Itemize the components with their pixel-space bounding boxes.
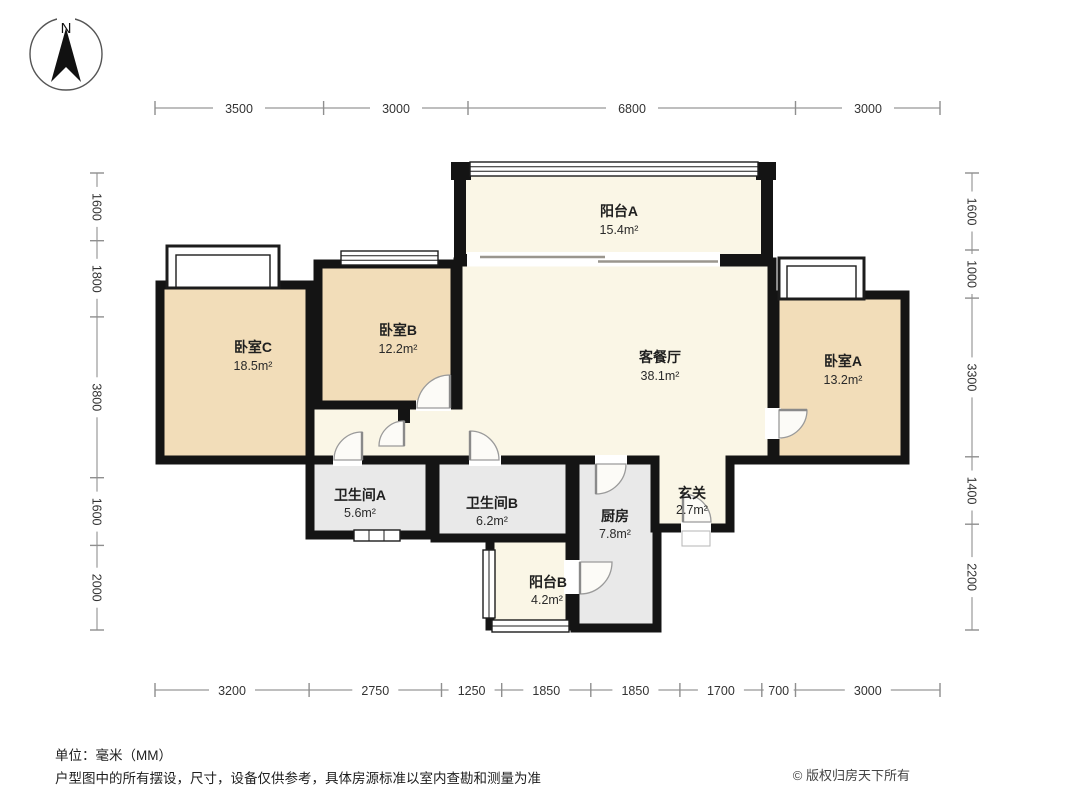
rooms-and-walls <box>160 162 905 628</box>
entry-threshold <box>682 531 710 546</box>
bedroom-a-bay-window <box>779 258 864 299</box>
room-area: 13.2m² <box>824 373 863 387</box>
room-area: 2.7m² <box>676 503 708 517</box>
dim-label: 700 <box>768 684 789 698</box>
dim-label: 1850 <box>532 684 560 698</box>
dim-label: 1700 <box>707 684 735 698</box>
dim-label: 2750 <box>361 684 389 698</box>
compass-north-label: N <box>61 20 72 37</box>
dim-label: 2000 <box>90 574 104 602</box>
room-area: 18.5m² <box>234 359 273 373</box>
room-label: 玄关 <box>678 485 706 501</box>
room-area: 15.4m² <box>600 223 639 237</box>
room-label: 卫生间B <box>466 495 518 511</box>
room-label: 阳台A <box>600 203 638 219</box>
dim-label: 3000 <box>854 684 882 698</box>
room-label: 卧室B <box>379 322 417 338</box>
room-area: 38.1m² <box>641 369 680 383</box>
dim-label: 3000 <box>382 102 410 116</box>
bath-a-window <box>354 530 400 541</box>
room-label: 卧室A <box>824 353 862 369</box>
room-label: 卧室C <box>234 339 272 355</box>
room-label: 卫生间A <box>334 487 386 503</box>
dimension-chain-left: 1600 1800 3800 1600 2000 <box>89 173 105 630</box>
dim-label: 3200 <box>218 684 246 698</box>
room-area: 12.2m² <box>379 342 418 356</box>
dim-label: 3000 <box>854 102 882 116</box>
dim-label: 1600 <box>90 498 104 526</box>
room-label: 阳台B <box>529 574 567 590</box>
dim-label: 1000 <box>965 260 979 288</box>
dim-label: 1400 <box>965 477 979 505</box>
dim-label: 3500 <box>225 102 253 116</box>
copyright-text: © 版权归房天下所有 <box>793 765 910 784</box>
bedroom-c-bay-window <box>167 246 279 288</box>
north-compass: N <box>30 17 102 90</box>
floorplan-svg: N <box>0 0 1066 800</box>
floorplan-page: N <box>0 0 1066 800</box>
dim-label: 1600 <box>90 193 104 221</box>
dim-label: 3800 <box>90 383 104 411</box>
room-label: 厨房 <box>601 508 629 524</box>
dimension-chain-top: 3500 3000 6800 3000 <box>155 100 940 116</box>
dim-label: 2200 <box>965 563 979 591</box>
disclaimer-text: 户型图中的所有摆设，尺寸，设备仅供参考，具体房源标准以室内查勘和测量为准 <box>55 767 541 787</box>
dim-label: 6800 <box>618 102 646 116</box>
room-area: 6.2m² <box>476 514 508 528</box>
dim-label: 1250 <box>458 684 486 698</box>
room-area: 5.6m² <box>344 506 376 520</box>
dim-label: 1850 <box>621 684 649 698</box>
opening-balcony-a-slider <box>467 252 720 267</box>
wall-corner-balcony-right <box>756 162 776 180</box>
unit-note: 单位：毫米（MM） <box>55 744 172 764</box>
dim-label: 1600 <box>965 198 979 226</box>
room-area: 4.2m² <box>531 593 563 607</box>
balcony-a-window <box>470 162 758 176</box>
room-area: 7.8m² <box>599 527 631 541</box>
wall-corner-balcony-left <box>451 162 471 180</box>
dim-label: 3300 <box>965 363 979 391</box>
dimension-chain-bottom: 3200 2750 1250 1850 1850 1700 700 3000 <box>155 682 940 698</box>
dim-label: 1800 <box>90 265 104 293</box>
dimension-chain-right: 1600 1000 3300 1400 2200 <box>964 173 980 630</box>
room-label: 客餐厅 <box>638 349 681 365</box>
bedroom-b-window <box>341 251 438 265</box>
